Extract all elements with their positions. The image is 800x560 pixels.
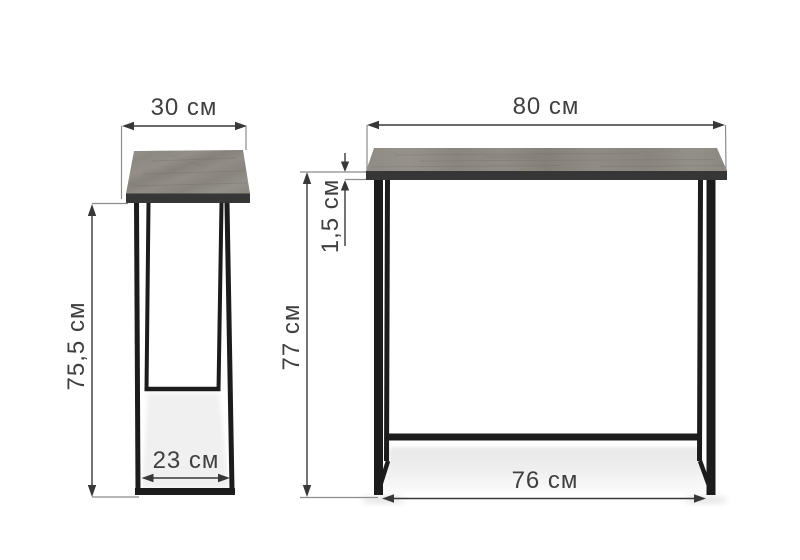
dim-label-top-thickness: 1,5 см: [317, 179, 344, 254]
dim-frame-height: 75,5 см: [63, 204, 139, 498]
product-dimension-image: 30 см 75,5 см 23 см: [0, 0, 800, 560]
side-view-front-leg-right: [227, 203, 232, 490]
dim-height-arrow-bottom: [303, 485, 311, 497]
dim-label-side-leg-span: 23 см: [153, 447, 220, 474]
dim-label-front-leg-span: 76 см: [512, 467, 579, 494]
side-view: 30 см 75,5 см 23 см: [63, 94, 250, 497]
front-view-tabletop-edge: [366, 171, 727, 180]
front-view: 80 см 1,5 см 77 см 76 см: [278, 93, 728, 504]
side-view-tabletop-edge: [126, 194, 250, 204]
dim-top-width-ext-right: [726, 125, 727, 170]
dim-height-arrow-top: [303, 172, 311, 184]
dim-frame-height-arrow-top: [88, 204, 96, 216]
front-view-leg-shadow-right: [684, 496, 728, 504]
side-view-front-leg-left: [137, 203, 139, 490]
front-view-rear-leg-left: [387, 180, 388, 461]
dim-label-top-depth: 30 см: [151, 94, 218, 121]
dim-top-thickness: 1,5 см: [317, 153, 366, 253]
dim-top-depth-arrow-left: [122, 122, 134, 130]
dim-top-thickness-arrow-down: [341, 162, 349, 173]
dim-top-width-arrow-right: [713, 121, 725, 129]
diagram-canvas: 30 см 75,5 см 23 см: [0, 0, 800, 560]
side-view-rear-leg-right: [219, 203, 222, 391]
dim-frame-height-arrow-bottom: [88, 485, 96, 497]
dim-label-frame-height: 75,5 см: [63, 302, 90, 391]
dim-top-width-arrow-left: [367, 121, 379, 129]
dim-label-top-width: 80 см: [513, 93, 580, 120]
side-view-rear-leg-left: [147, 203, 149, 391]
dim-label-height: 77 см: [278, 304, 305, 371]
front-view-rear-leg-right: [700, 180, 701, 461]
dim-top-depth-arrow-right: [235, 122, 247, 130]
